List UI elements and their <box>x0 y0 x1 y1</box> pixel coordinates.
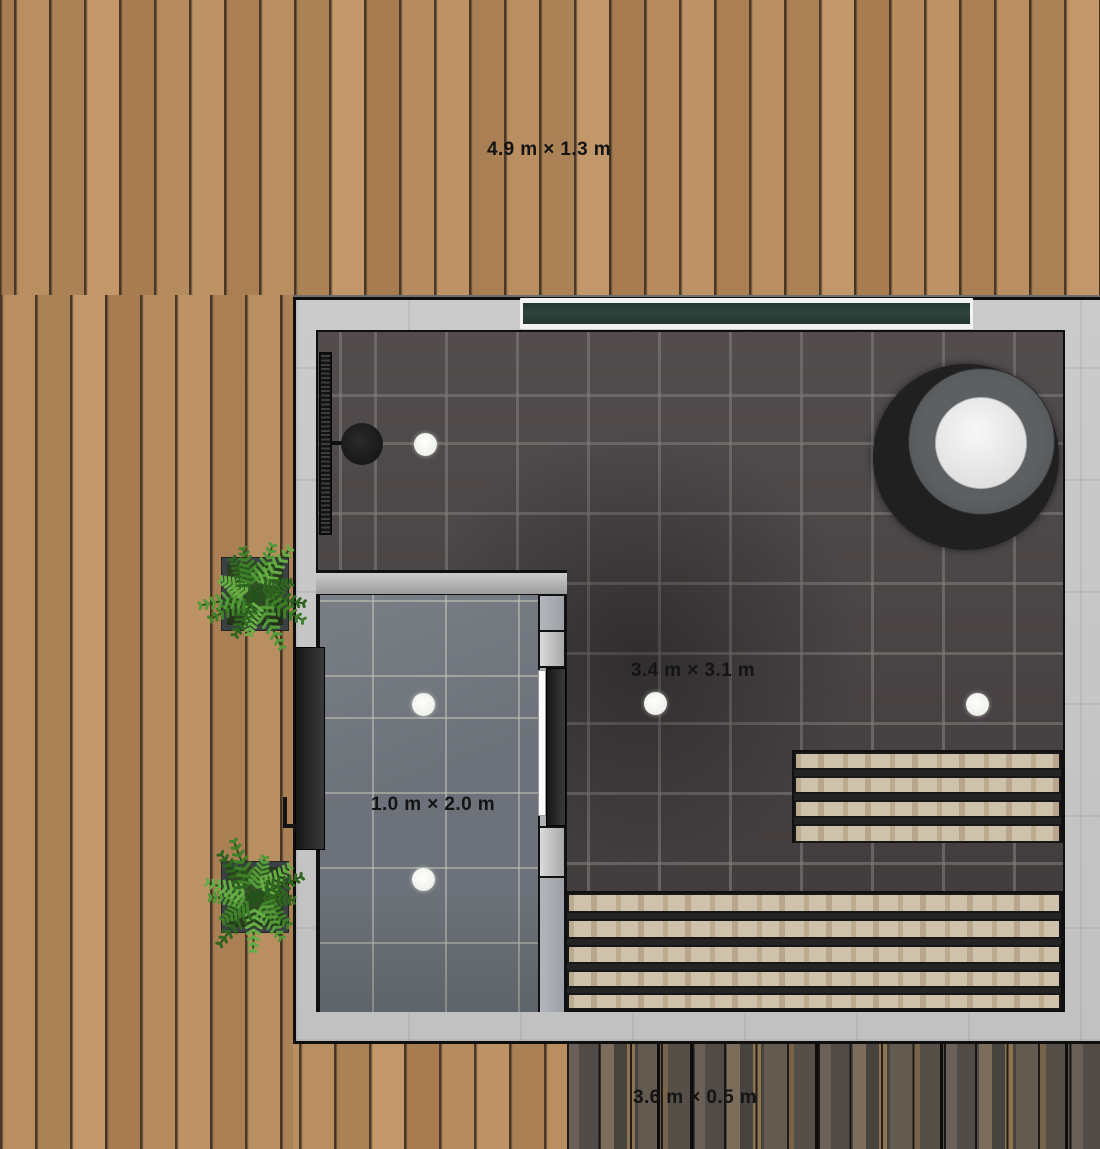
door-handle <box>283 797 287 827</box>
ceiling-light[interactable] <box>644 692 667 715</box>
window[interactable] <box>520 298 973 329</box>
exterior-door[interactable] <box>295 647 325 850</box>
shower-room-top-wall <box>316 570 567 596</box>
lower-bench[interactable] <box>565 891 1063 1010</box>
sauna-room-dimension-label: 3.4 m × 3.1 m <box>631 660 755 682</box>
ceiling-light[interactable] <box>966 693 989 716</box>
bench-slat <box>567 893 1061 913</box>
ceiling-light[interactable] <box>412 693 435 716</box>
floor-plan-canvas: 4.9 m × 1.3 m 3.4 m × 3.1 m 1.0 m × 2.0 … <box>0 0 1100 1149</box>
bench-slat <box>794 824 1061 843</box>
bench-slat <box>794 800 1061 818</box>
window-glass <box>523 303 970 324</box>
bench-slat <box>567 945 1061 964</box>
fern-planter[interactable] <box>222 558 288 630</box>
bench-slat <box>567 919 1061 939</box>
bench-slat <box>567 993 1061 1010</box>
shower-room-door-glass <box>538 670 546 816</box>
top-deck-dimension-label: 4.9 m × 1.3 m <box>487 139 611 161</box>
ceiling-light[interactable] <box>412 868 435 891</box>
shower-head[interactable] <box>341 423 383 465</box>
shower-room-dimension-label: 1.0 m × 2.0 m <box>371 794 495 816</box>
bottom-deck-light[interactable] <box>293 1044 567 1149</box>
bottom-deck-dimension-label: 3.6 m × 0.5 m <box>633 1087 757 1109</box>
hot-tub-basin <box>935 397 1027 489</box>
upper-bench[interactable] <box>792 750 1063 843</box>
door-jamb <box>538 826 566 878</box>
fern-planter[interactable] <box>222 862 288 932</box>
ceiling-light[interactable] <box>414 433 437 456</box>
door-handle <box>283 824 296 828</box>
left-deck[interactable] <box>0 295 293 1149</box>
door-jamb <box>538 630 566 668</box>
bench-slat <box>567 970 1061 988</box>
bench-slat <box>794 776 1061 794</box>
shower-room-door[interactable] <box>546 668 566 826</box>
bench-slat <box>794 752 1061 770</box>
